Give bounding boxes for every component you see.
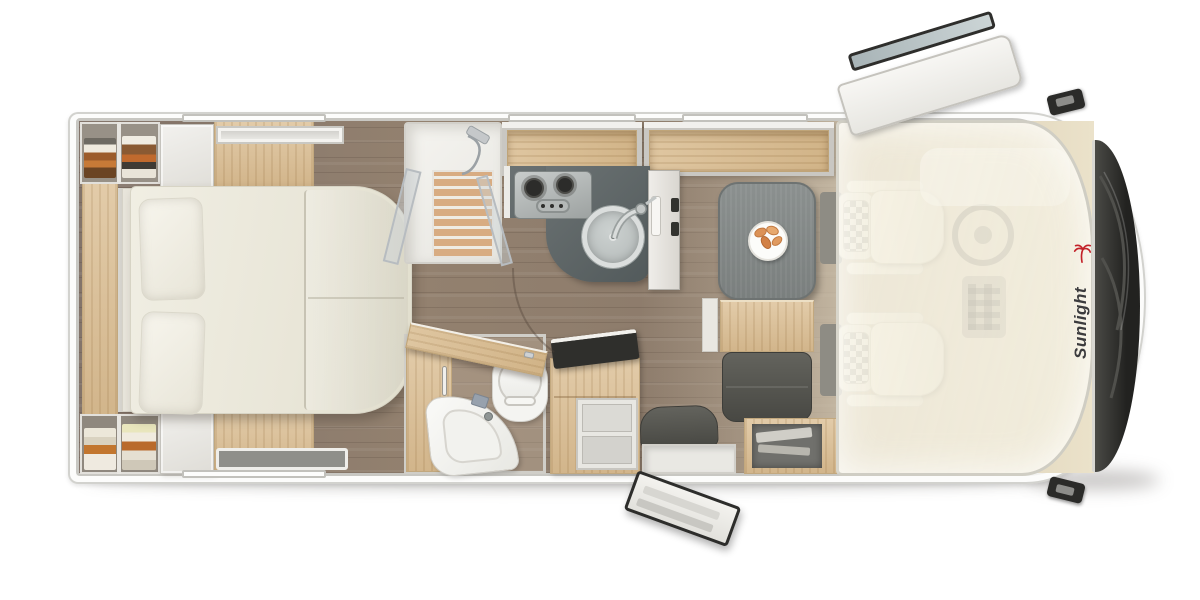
hob-knob bbox=[550, 204, 554, 208]
windshield bbox=[1092, 140, 1140, 472]
palm-tree-icon bbox=[1071, 242, 1093, 264]
wardrobe-divider bbox=[117, 122, 121, 184]
washbasin-faucet bbox=[484, 412, 493, 421]
hob-burner bbox=[524, 178, 544, 198]
overhead-locker-rear-top bbox=[160, 124, 214, 194]
floor-hatch bbox=[216, 448, 348, 470]
pillow bbox=[138, 197, 206, 301]
wardrobe-clothes bbox=[122, 136, 156, 178]
overhead-locker-dinette-interior bbox=[649, 130, 829, 172]
washroom-cabinet-handle bbox=[442, 366, 447, 396]
bed-seam bbox=[308, 297, 404, 299]
overhead-locker-kitchen-top-edge bbox=[502, 122, 642, 128]
overhead-locker-dinette-top-edge bbox=[644, 122, 834, 128]
entry-step-tread bbox=[582, 404, 632, 432]
entry-step-tread bbox=[582, 436, 632, 464]
cushion-seam bbox=[726, 386, 808, 388]
sunlight-logo-text: Sunlight bbox=[1071, 263, 1093, 383]
hob-knob bbox=[541, 204, 545, 208]
wardrobe-folded-clothes bbox=[84, 428, 116, 470]
sink-drain bbox=[609, 233, 617, 241]
entry-seat-cushion bbox=[639, 405, 718, 450]
wardrobe-folded-clothes bbox=[122, 424, 156, 470]
wall-window bbox=[508, 114, 636, 122]
hob-burner bbox=[556, 176, 574, 194]
wall-window bbox=[682, 114, 808, 122]
fridge-latch bbox=[671, 198, 679, 212]
motorhome-floorplan: Sunlight bbox=[0, 0, 1200, 600]
fridge-latch bbox=[671, 222, 679, 236]
cab-roof-overlay bbox=[836, 120, 1094, 476]
dinette-bench-base bbox=[720, 300, 814, 352]
toilet-seat-slot bbox=[504, 396, 536, 406]
pillow bbox=[138, 311, 206, 415]
entry-floor-well bbox=[642, 444, 736, 474]
rear-wall-panel bbox=[82, 182, 118, 418]
hob-knob bbox=[559, 204, 563, 208]
roof-skylight-inner bbox=[221, 131, 339, 139]
fridge-handle bbox=[651, 196, 661, 236]
wardrobe-divider bbox=[117, 414, 121, 474]
wall-window bbox=[182, 470, 326, 478]
bench-side-panel bbox=[702, 298, 718, 352]
wall-window bbox=[182, 114, 326, 122]
wardrobe-clothes bbox=[84, 138, 116, 178]
